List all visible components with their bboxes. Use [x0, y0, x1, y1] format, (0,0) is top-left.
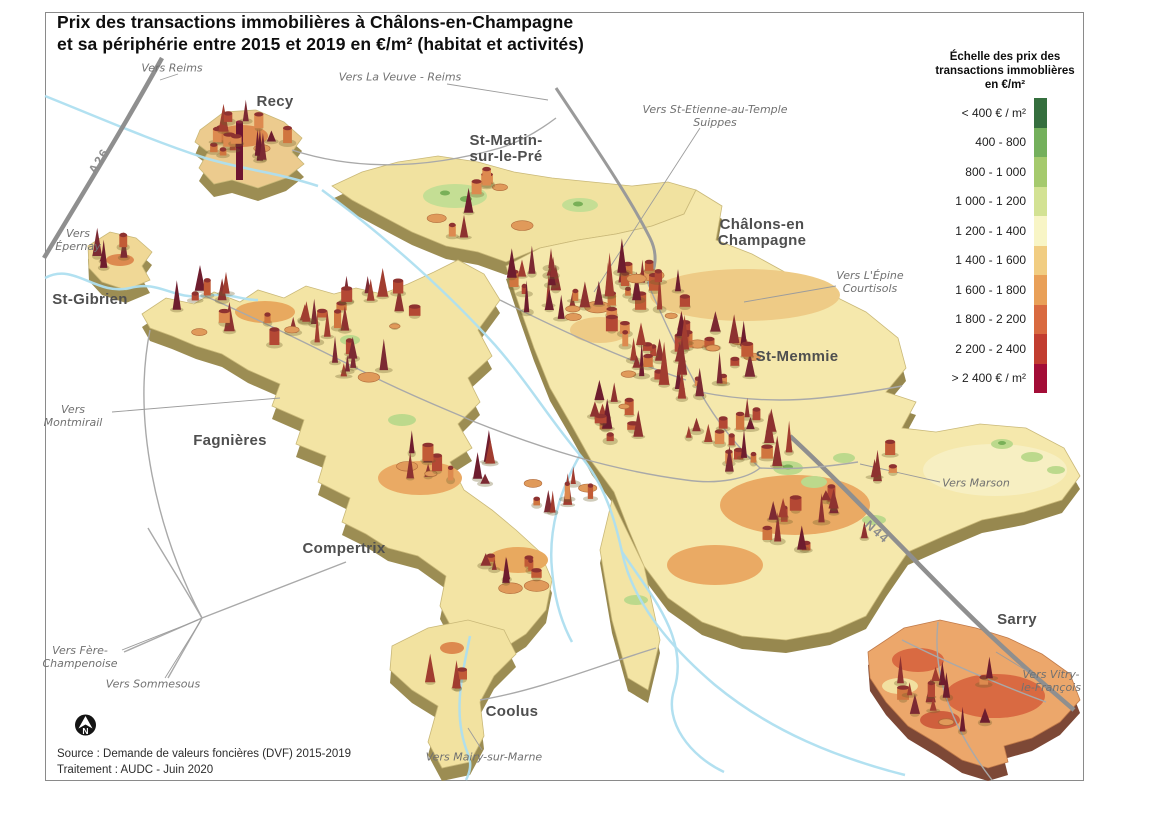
legend-item: 1 800 - 2 200 — [924, 305, 1086, 335]
legend-item: > 2 400 € / m² — [924, 364, 1086, 394]
legend-items: < 400 € / m²400 - 800800 - 1 0001 000 - … — [924, 98, 1086, 393]
legend-color-swatch — [1034, 128, 1047, 158]
legend-color-swatch — [1034, 334, 1047, 364]
legend-item: 2 200 - 2 400 — [924, 334, 1086, 364]
legend-item-label: 1 800 - 2 200 — [924, 312, 1034, 326]
legend-title: Échelle des prix des transactions immobl… — [924, 50, 1086, 92]
legend-item: 400 - 800 — [924, 128, 1086, 158]
north-arrow-icon: N — [75, 715, 96, 737]
legend-item-label: 1 400 - 1 600 — [924, 253, 1034, 267]
legend-item-label: 400 - 800 — [924, 135, 1034, 149]
legend-item: < 400 € / m² — [924, 98, 1086, 128]
legend-color-swatch — [1034, 216, 1047, 246]
page-title: Prix des transactions immobilières à Châ… — [57, 12, 584, 55]
legend-item: 1 600 - 1 800 — [924, 275, 1086, 305]
legend: Échelle des prix des transactions immobl… — [924, 50, 1086, 393]
legend-color-swatch — [1034, 364, 1047, 394]
legend-item-label: < 400 € / m² — [924, 106, 1034, 120]
legend-color-swatch — [1034, 187, 1047, 217]
legend-color-swatch — [1034, 98, 1047, 128]
source-note: Source : Demande de valeurs foncières (D… — [57, 746, 351, 778]
legend-item: 1 400 - 1 600 — [924, 246, 1086, 276]
legend-color-swatch — [1034, 246, 1047, 276]
legend-color-swatch — [1034, 275, 1047, 305]
legend-item-label: 1 000 - 1 200 — [924, 194, 1034, 208]
legend-item-label: 1 200 - 1 400 — [924, 224, 1034, 238]
legend-item-label: 2 200 - 2 400 — [924, 342, 1034, 356]
legend-item-label: 800 - 1 000 — [924, 165, 1034, 179]
legend-item-label: 1 600 - 1 800 — [924, 283, 1034, 297]
legend-item-label: > 2 400 € / m² — [924, 371, 1034, 385]
legend-item: 800 - 1 000 — [924, 157, 1086, 187]
legend-item: 1 200 - 1 400 — [924, 216, 1086, 246]
legend-item: 1 000 - 1 200 — [924, 187, 1086, 217]
legend-color-swatch — [1034, 305, 1047, 335]
svg-text:N: N — [82, 726, 88, 736]
page: { "title": { "text": "Prix des transacti… — [0, 0, 1170, 827]
legend-color-swatch — [1034, 157, 1047, 187]
